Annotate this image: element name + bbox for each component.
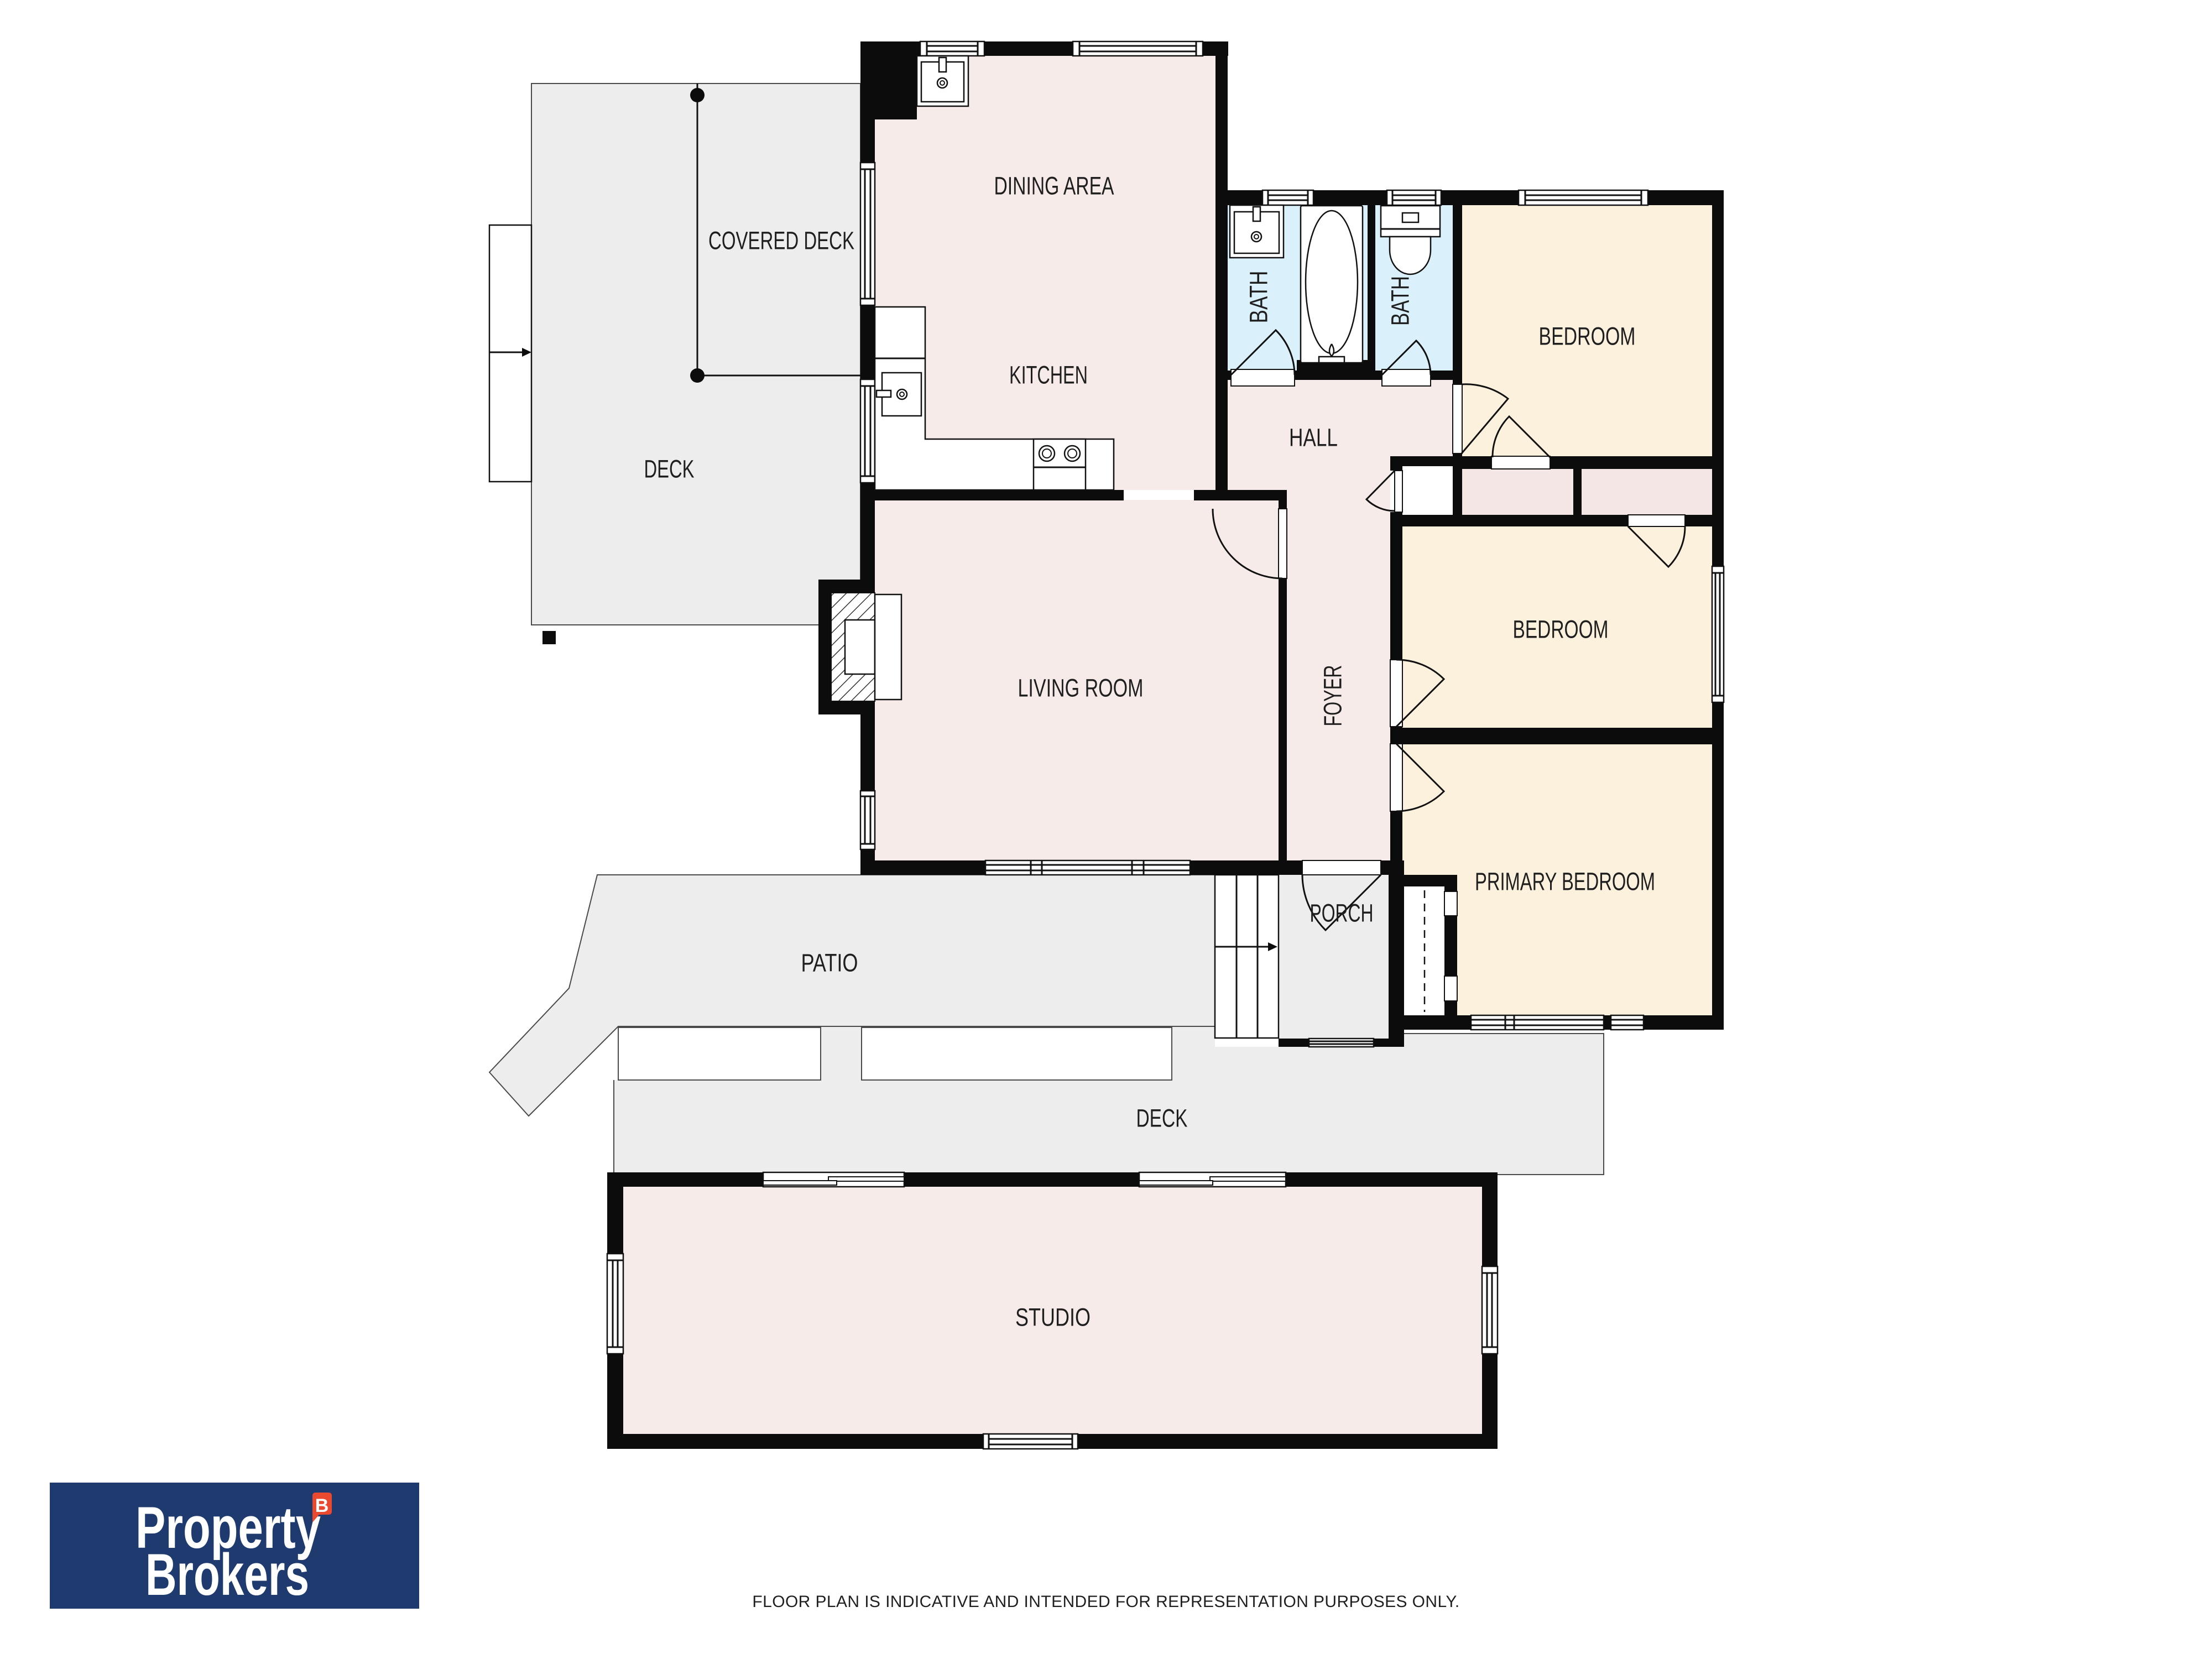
svg-text:DINING AREA: DINING AREA bbox=[994, 172, 1114, 200]
svg-text:STUDIO: STUDIO bbox=[1015, 1303, 1091, 1332]
svg-text:PATIO: PATIO bbox=[801, 949, 858, 977]
svg-text:KITCHEN: KITCHEN bbox=[1009, 361, 1088, 389]
svg-text:PRIMARY BEDROOM: PRIMARY BEDROOM bbox=[1475, 868, 1655, 896]
svg-text:PORCH: PORCH bbox=[1310, 899, 1374, 927]
svg-text:BEDROOM: BEDROOM bbox=[1539, 322, 1636, 351]
svg-text:COVERED DECK: COVERED DECK bbox=[708, 227, 854, 255]
svg-text:FLOOR PLAN IS INDICATIVE AND I: FLOOR PLAN IS INDICATIVE AND INTENDED FO… bbox=[752, 1593, 1459, 1611]
svg-text:Brokers: Brokers bbox=[145, 1541, 309, 1608]
svg-text:DECK: DECK bbox=[644, 455, 695, 483]
svg-text:B: B bbox=[315, 1495, 329, 1516]
svg-text:LIVING ROOM: LIVING ROOM bbox=[1018, 674, 1144, 702]
svg-text:BATH: BATH bbox=[1386, 276, 1415, 326]
svg-text:BEDROOM: BEDROOM bbox=[1513, 615, 1609, 644]
svg-text:FOYER: FOYER bbox=[1319, 665, 1347, 727]
svg-text:DECK: DECK bbox=[1136, 1104, 1188, 1133]
svg-text:HALL: HALL bbox=[1289, 424, 1338, 452]
svg-text:BATH: BATH bbox=[1245, 271, 1273, 324]
